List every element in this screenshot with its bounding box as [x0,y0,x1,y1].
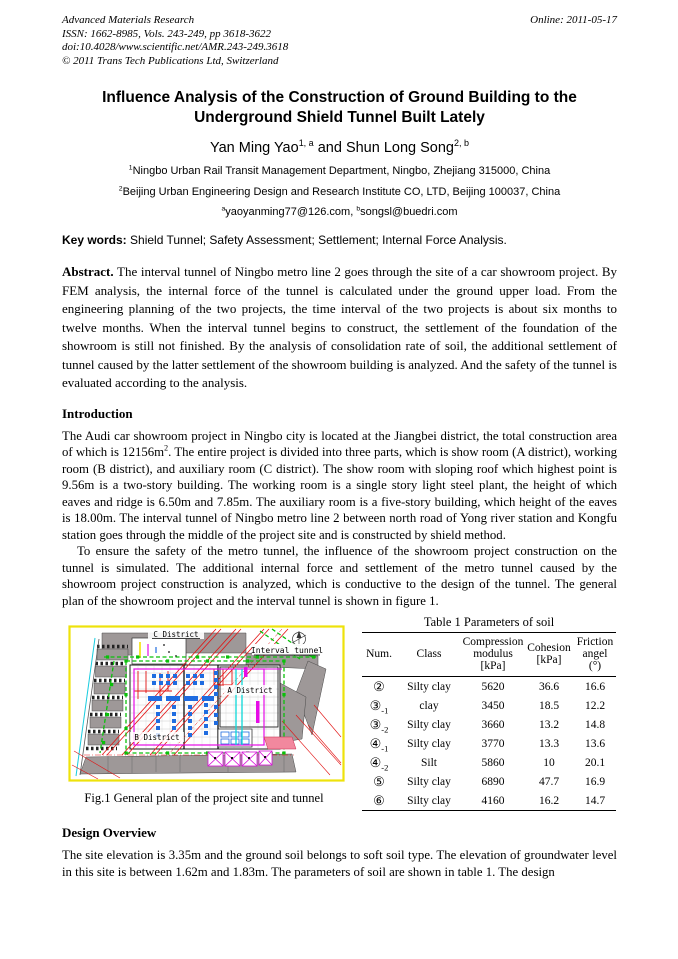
soil-num-sub: -1 [381,743,388,753]
c-district-block [132,638,186,664]
affiliation-1: 1Ningbo Urban Rail Transit Management De… [62,165,617,177]
soil-num-sub: -2 [381,762,388,772]
introduction-para-1: The Audi car showroom project in Ningbo … [62,428,617,544]
authors-line: Yan Ming Yao1, a and Shun Long Song2, b [62,140,617,156]
header-modulus: Compression modulus [kPa] [462,633,524,677]
table-row: ② Silty clay 5620 36.6 16.6 [362,677,616,697]
soil-cohesion: 10 [524,753,574,772]
table-row: ⑤ Silty clay 6890 47.7 16.9 [362,772,616,791]
header-class: Class [396,633,462,677]
soil-num: ③ [370,698,382,713]
keywords-text: Shield Tunnel; Safety Assessment; Settle… [127,233,507,247]
soil-class: Silty clay [396,677,462,697]
header-num: Num. [362,633,396,677]
table-row: ④-1 Silty clay 3770 13.3 13.6 [362,734,616,753]
keywords-label: Key words: [62,233,127,247]
affiliation-2-text: Beijing Urban Engineering Design and Res… [123,186,561,198]
email-a: yaoyanming77@126.com [225,206,350,218]
soil-class: Silty clay [396,734,462,753]
introduction-heading: Introduction [62,406,617,422]
keywords-line: Key words: Shield Tunnel; Safety Assessm… [62,233,617,248]
figure-column: C District Interval tunnel A District B … [62,615,354,806]
design-overview-para: The site elevation is 3.35m and the grou… [62,847,617,880]
soil-num-sub: -1 [381,705,388,715]
soil-cohesion: 18.5 [524,696,574,715]
intro-para1-part-b: . The entire project is divided into thr… [62,445,617,542]
interval-tunnel-label: Interval tunnel [251,646,323,655]
soil-friction: 14.8 [574,715,616,734]
soil-friction: 13.6 [574,734,616,753]
header-friction: Friction angel (°) [574,633,616,677]
soil-num: ② [373,679,385,694]
journal-doi: doi:10.4028/www.scientific.net/AMR.243-2… [62,41,288,55]
soil-modulus: 3450 [462,696,524,715]
soil-modulus: 5620 [462,677,524,697]
journal-issn: ISSN: 1662-8985, Vols. 243-249, pp 3618-… [62,28,288,42]
journal-info: Advanced Materials Research ISSN: 1662-8… [62,14,288,68]
online-date: Online: 2011-05-17 [530,14,617,28]
soil-friction: 16.9 [574,772,616,791]
table-row: ③-2 Silty clay 3660 13.2 14.8 [362,715,616,734]
author-1: Yan Ming Yao [210,140,299,156]
email-b: songsl@buedri.com [360,206,457,218]
soil-cohesion: 47.7 [524,772,574,791]
soil-friction: 14.7 [574,791,616,811]
author-1-superscript: 1, a [299,138,314,148]
abstract-label: Abstract. [62,264,114,279]
paper-title: Influence Analysis of the Construction o… [87,88,592,128]
soil-num: ④ [370,736,382,751]
author-2: Shun Long Song [346,140,454,156]
table-row: ⑥ Silty clay 4160 16.2 14.7 [362,791,616,811]
b-district-label: B District [134,733,179,742]
soil-modulus: 5860 [462,753,524,772]
affiliation-1-text: Ningbo Urban Rail Transit Management Dep… [133,165,551,177]
table-title: Table 1 Parameters of soil [362,615,616,630]
soil-class: Silt [396,753,462,772]
introduction-para-2: To ensure the safety of the metro tunnel… [62,543,617,609]
paper-page: Advanced Materials Research ISSN: 1662-8… [0,0,678,959]
soil-class: Silty clay [396,772,462,791]
header-cohesion: Cohesion [kPa] [524,633,574,677]
soil-friction: 20.1 [574,753,616,772]
soil-friction: 12.2 [574,696,616,715]
soil-num: ⑤ [373,774,385,789]
table-header-row: Num. Class Compression modulus [kPa] Coh… [362,633,616,677]
soil-cohesion: 13.3 [524,734,574,753]
abstract-text: The interval tunnel of Ningbo metro line… [62,264,617,390]
a-district-label: A District [227,686,272,695]
soil-cohesion: 36.6 [524,677,574,697]
emails-line: ayaoyanming77@126.com, bsongsl@buedri.co… [62,206,617,218]
journal-header: Advanced Materials Research ISSN: 1662-8… [62,14,617,68]
soil-modulus: 3770 [462,734,524,753]
soil-modulus: 3660 [462,715,524,734]
soil-class: Silty clay [396,791,462,811]
journal-copyright: © 2011 Trans Tech Publications Ltd, Swit… [62,55,288,69]
soil-class: Silty clay [396,715,462,734]
soil-friction: 16.6 [574,677,616,697]
soil-class: clay [396,696,462,715]
c-district-label: C District [153,630,198,639]
soil-parameters-table: Num. Class Compression modulus [kPa] Coh… [362,632,616,811]
soil-cohesion: 16.2 [524,791,574,811]
soil-num-sub: -2 [381,724,388,734]
authors-connector: and [314,140,346,156]
affiliation-2: 2Beijing Urban Engineering Design and Re… [62,186,617,198]
soil-num: ⑥ [373,793,385,808]
table-row: ④-2 Silt 5860 10 20.1 [362,753,616,772]
soil-modulus: 6890 [462,772,524,791]
site-plan-figure: C District Interval tunnel A District B … [68,625,346,783]
figure-table-row: C District Interval tunnel A District B … [62,615,617,811]
author-2-superscript: 2, b [454,138,469,148]
soil-cohesion: 13.2 [524,715,574,734]
figure-caption: Fig.1 General plan of the project site a… [62,791,346,806]
abstract: Abstract. The interval tunnel of Ningbo … [62,263,617,393]
table-column: Table 1 Parameters of soil Num. Class Co… [362,615,616,811]
journal-name: Advanced Materials Research [62,14,288,28]
soil-num: ③ [370,717,382,732]
design-overview-heading: Design Overview [62,825,617,841]
table-row: ③-1 clay 3450 18.5 12.2 [362,696,616,715]
soil-num: ④ [370,755,382,770]
soil-modulus: 4160 [462,791,524,811]
